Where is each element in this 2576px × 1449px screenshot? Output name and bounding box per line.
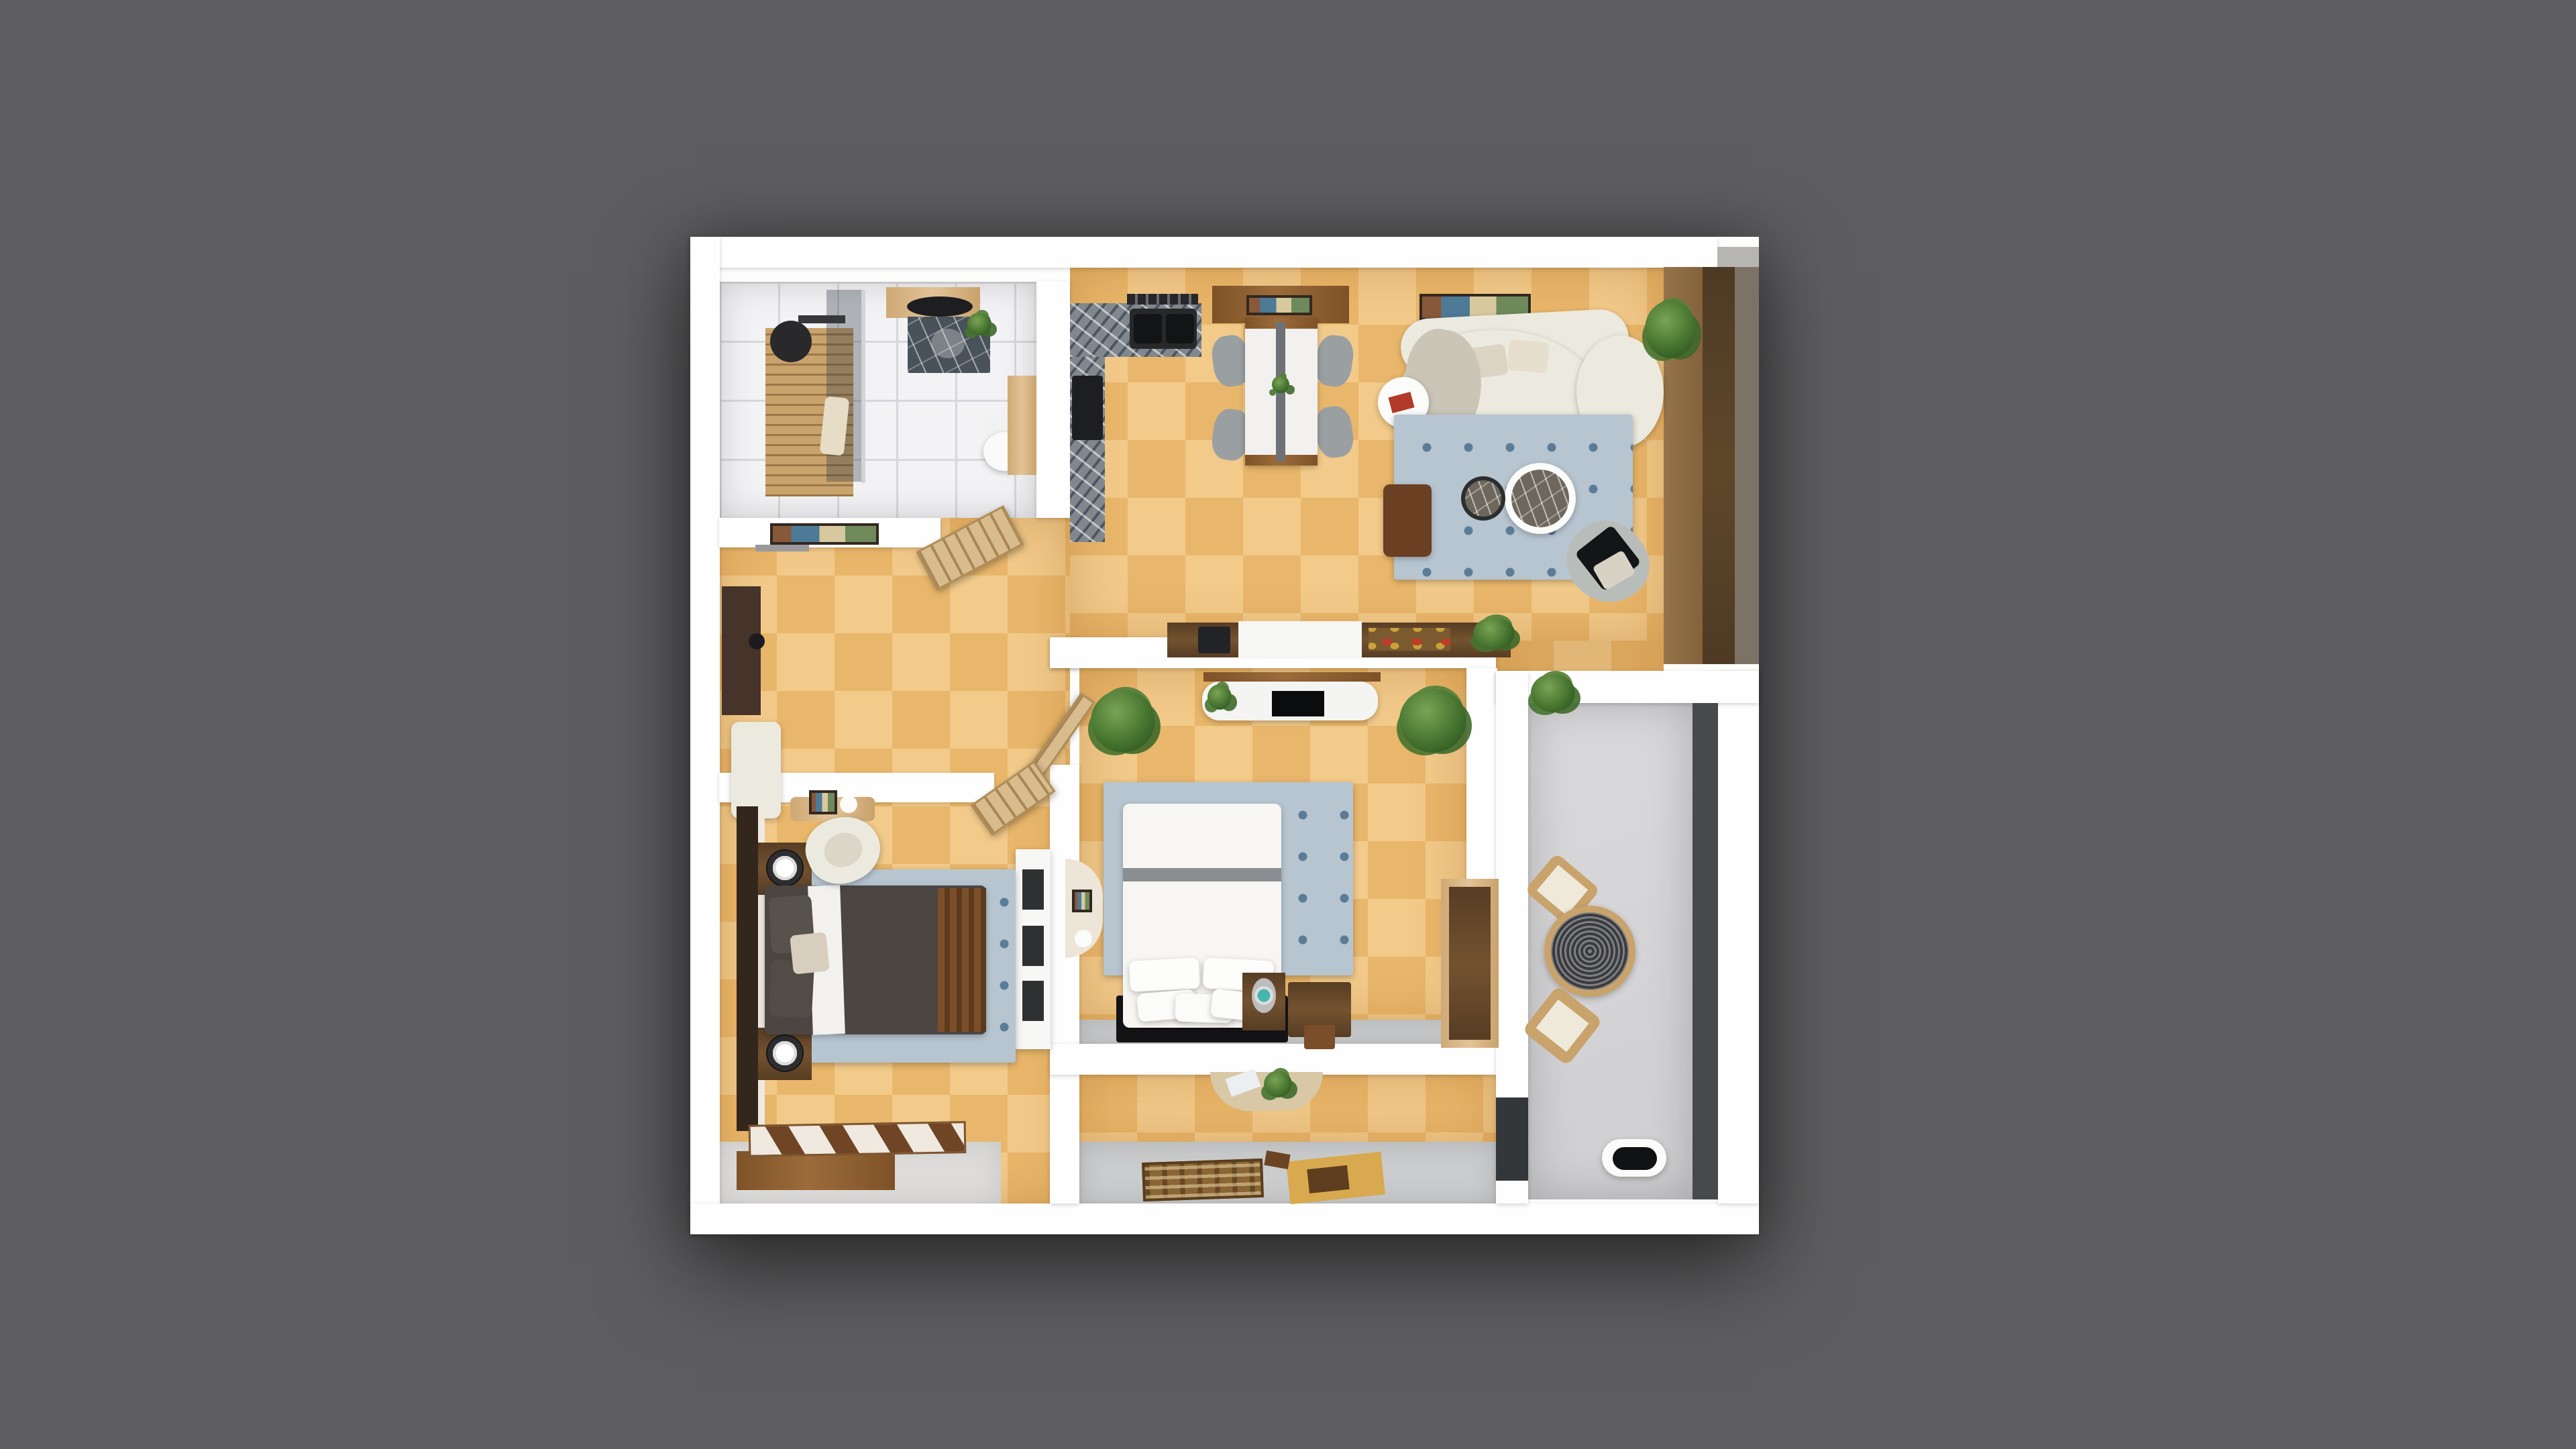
living-wardrobe-body <box>1703 267 1735 664</box>
tv-plant <box>1207 684 1232 710</box>
console-food-tray <box>1368 628 1450 651</box>
vanity-sink <box>931 329 965 358</box>
sink-bowl-left <box>1134 314 1162 343</box>
left-bench-top <box>749 1121 967 1157</box>
wall-outer-top <box>690 237 1717 268</box>
living-wardrobe-side <box>1735 267 1759 664</box>
balcony-door-glass <box>1496 1097 1528 1181</box>
left-pillow-small <box>790 932 830 974</box>
tv-shelf <box>1203 672 1381 682</box>
kitchen-vent <box>1127 294 1198 305</box>
living-console-white <box>1238 621 1362 659</box>
balcony-table-top <box>1551 912 1629 990</box>
vanity-plant <box>967 313 991 335</box>
master-plant-left <box>1091 690 1155 753</box>
hall-dresser-slot-2 <box>1022 926 1044 966</box>
hall-dresser-slot-3 <box>1022 981 1044 1021</box>
master-pillow-1 <box>1129 957 1200 991</box>
coffee-table-large-top <box>1511 470 1569 527</box>
corridor-runner-rug <box>1142 1159 1264 1201</box>
wall-master-bottom <box>1050 1044 1496 1075</box>
console-plant <box>1473 617 1515 649</box>
master-bed-band <box>1123 868 1281 881</box>
bathroom-cabinet <box>1008 376 1036 475</box>
hall-console-art <box>809 790 837 814</box>
hall-console-ball <box>840 796 857 813</box>
coat-niche <box>722 586 761 715</box>
left-lamp-bottom <box>766 1034 804 1072</box>
hall-wall-art <box>770 523 879 545</box>
sofa-pillow-2 <box>1507 339 1550 373</box>
cooktop <box>1072 376 1103 440</box>
wall-bedroom-divider <box>1050 765 1079 1203</box>
coat-hook-icon <box>749 633 765 649</box>
shower-head-icon <box>770 321 812 362</box>
master-plant-right <box>1399 688 1466 753</box>
wall-bathroom-right <box>1036 282 1070 518</box>
vanity-round-mirror <box>907 297 973 317</box>
living-floor-extension <box>1496 641 1664 672</box>
balcony-planter-inner <box>1613 1147 1657 1170</box>
living-plant <box>1645 301 1696 358</box>
coffee-table-small-top <box>1465 480 1501 517</box>
wall-outer-left <box>690 237 720 1234</box>
wall-shelf-art <box>1072 890 1092 912</box>
left-lamp-top <box>766 849 804 887</box>
hall-shelf-small <box>755 545 809 551</box>
sideboard-art <box>1246 295 1312 315</box>
left-headboard <box>737 806 758 1131</box>
left-bed-throw <box>938 888 986 1032</box>
hall-dresser-slot-1 <box>1022 869 1044 910</box>
wall-shelf-ball <box>1075 930 1092 947</box>
master-dresser-stool <box>1304 1025 1335 1049</box>
sink-bowl-right <box>1166 314 1194 343</box>
balcony-plant <box>1531 674 1575 712</box>
dining-table-plant <box>1272 376 1289 393</box>
wall-outer-right-lower <box>1718 671 1759 1203</box>
shower-glass-edge <box>861 290 865 483</box>
shower-arm <box>798 315 845 323</box>
left-bench-front <box>737 1151 895 1190</box>
console-coffee-machine <box>1198 627 1230 653</box>
tv <box>1272 691 1324 716</box>
master-oval-mirror <box>1252 978 1276 1013</box>
hall-bench <box>731 722 781 818</box>
living-pouf <box>1383 484 1432 557</box>
wall-corner-block <box>1717 247 1759 267</box>
balcony-railing <box>1693 703 1718 1199</box>
corridor-doormat-box <box>1307 1165 1349 1193</box>
floor-plan-stage <box>0 0 2576 1449</box>
corridor-plant <box>1264 1071 1292 1097</box>
master-wardrobe-inner <box>1449 887 1491 1040</box>
wall-outer-bottom <box>690 1203 1759 1234</box>
